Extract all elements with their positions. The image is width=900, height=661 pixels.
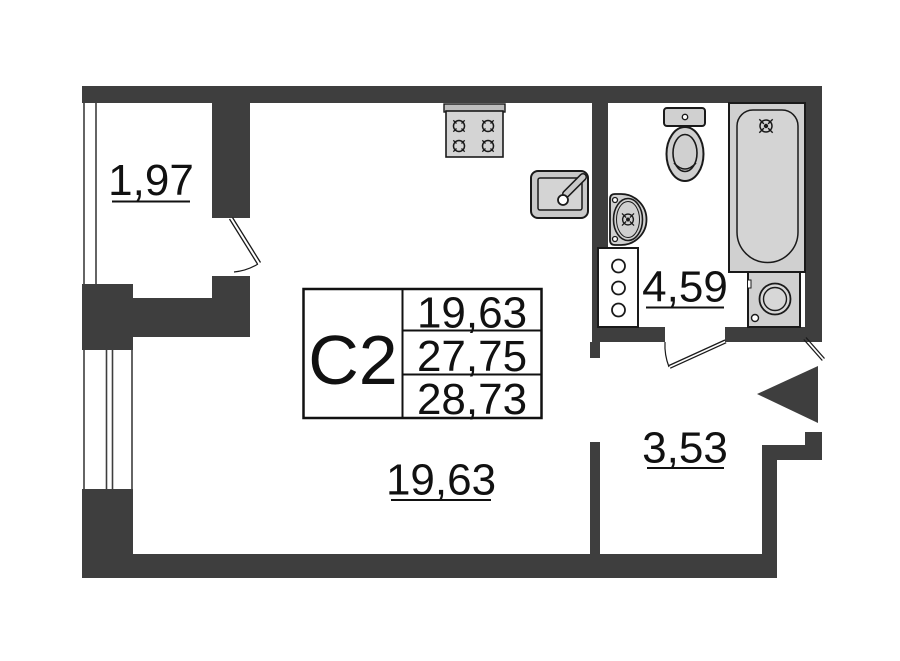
entrance-arrow-icon — [757, 366, 818, 423]
balcony-glazing-window — [84, 103, 96, 284]
unit-label: С2 — [308, 321, 397, 399]
wall-right-upper — [805, 103, 822, 342]
living-room-window — [84, 350, 132, 490]
wall-right-lower — [762, 460, 777, 578]
unit-area-row-1: 19,63 — [417, 289, 527, 338]
wall-left-pier-mid — [82, 284, 133, 350]
wall-left-pier-bottom — [82, 489, 133, 555]
wall-bottom — [82, 554, 777, 578]
wall-partition-lower — [590, 442, 600, 554]
stove-icon — [444, 104, 505, 157]
living-room-area-label: 19,63 — [386, 456, 496, 505]
floor-plan-page: 1,97 4,59 3,53 19,63 С2 19,63 27,75 28,7… — [0, 0, 900, 661]
hallway-area-label: 3,53 — [642, 424, 728, 473]
toilet-icon — [664, 108, 705, 181]
balcony-door — [230, 218, 261, 273]
kitchen-sink-icon — [531, 171, 588, 218]
wall-top — [82, 86, 822, 103]
washing-machine-icon — [748, 272, 801, 327]
wall-balcony-partition — [212, 103, 250, 218]
entrance-door — [757, 338, 825, 424]
bathtub-icon — [729, 103, 805, 272]
wall-bathroom-bottom-left — [592, 327, 665, 342]
unit-info-table: С2 19,63 27,75 28,73 — [304, 289, 542, 425]
washbasin-icon — [610, 194, 647, 245]
floor-plan-drawing: 1,97 4,59 3,53 19,63 С2 19,63 27,75 28,7… — [0, 0, 900, 661]
bathroom-area-label: 4,59 — [642, 263, 728, 312]
utility-shaft-icon — [598, 248, 638, 327]
wall-balcony-partition-stub — [212, 276, 250, 298]
wall-right-jog — [762, 445, 822, 460]
wall-partition-upper-stub — [590, 342, 600, 358]
unit-area-row-2: 27,75 — [417, 332, 527, 381]
balcony-area-label: 1,97 — [108, 156, 194, 205]
unit-area-row-3: 28,73 — [417, 375, 527, 424]
bathroom-door — [665, 340, 726, 368]
